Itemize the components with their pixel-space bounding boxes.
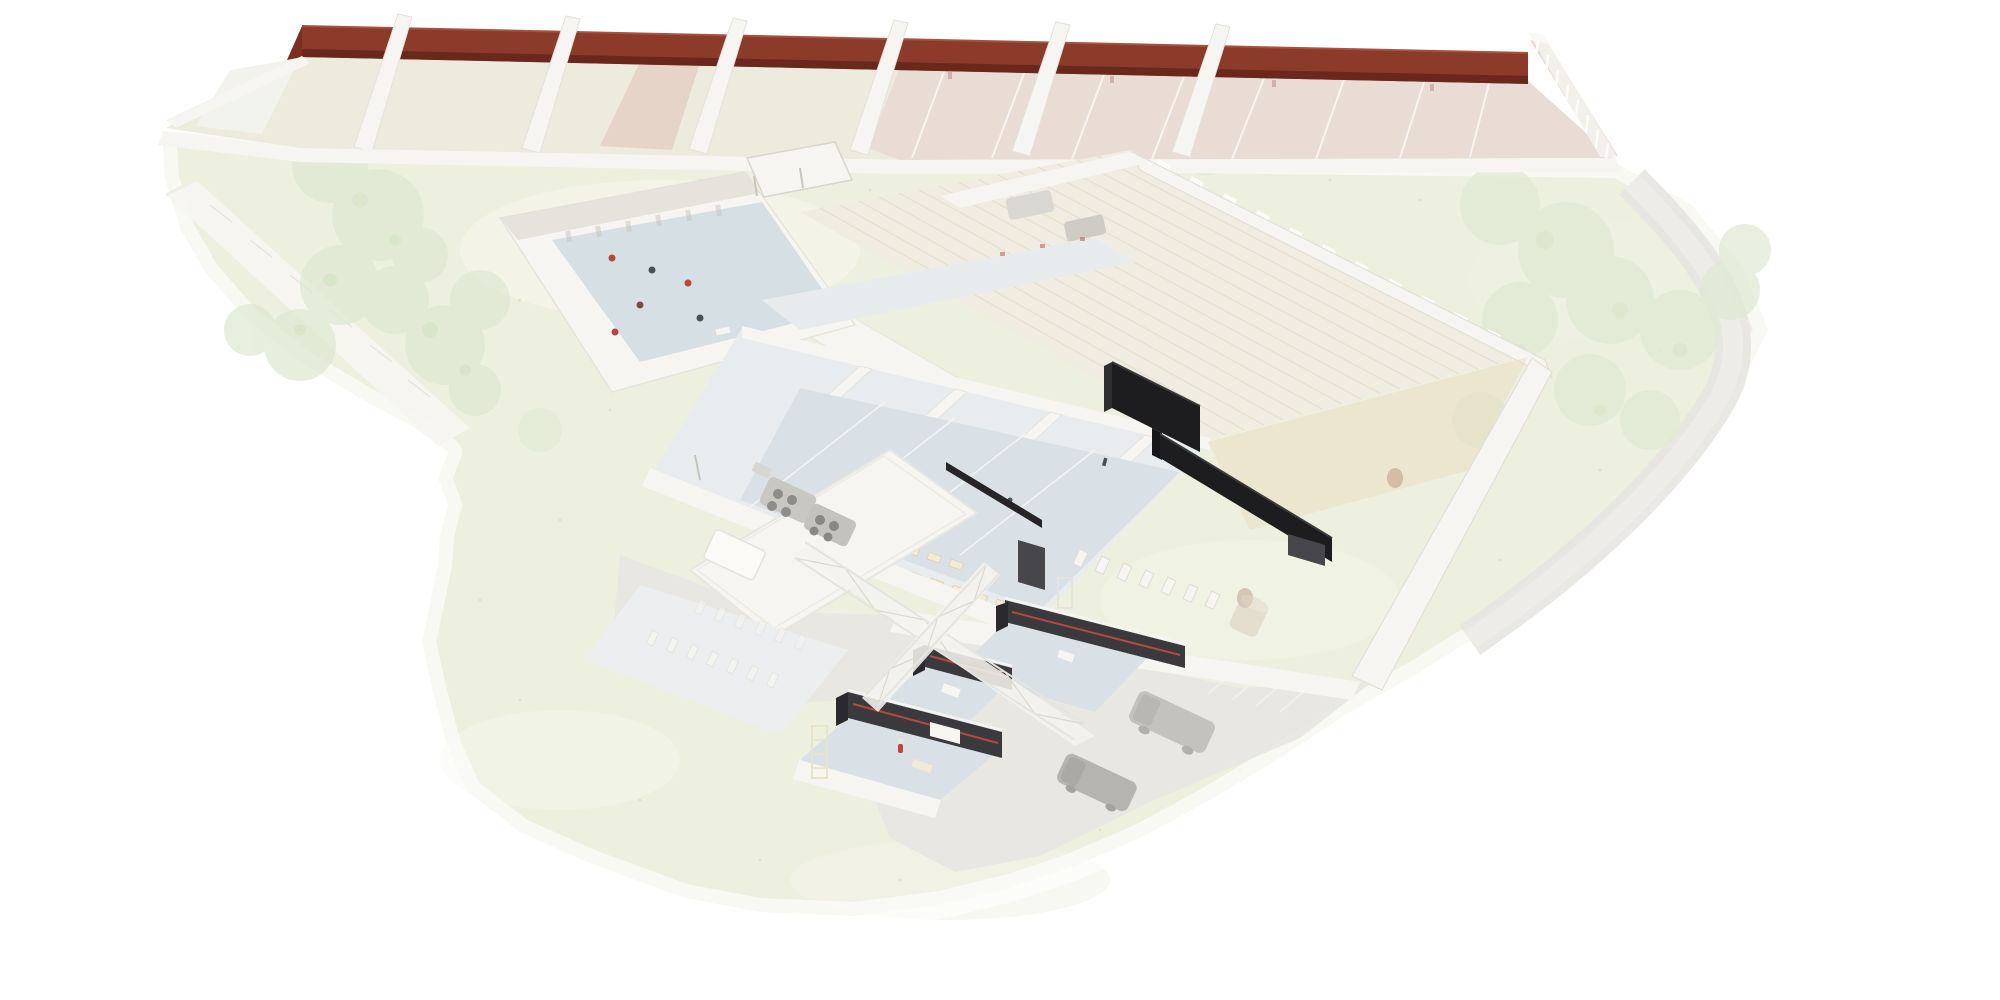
site-rendering (0, 0, 2000, 1000)
axonometric-scene (0, 0, 2000, 1000)
figure (612, 329, 619, 336)
figure (685, 280, 692, 287)
courts-strip (158, 14, 1620, 174)
red-wall-end-cap (287, 26, 302, 60)
figure (649, 267, 656, 274)
dark-wall-fragment-a (1018, 540, 1045, 590)
figure (637, 302, 644, 309)
figure (697, 315, 704, 322)
figure (609, 255, 616, 262)
black-wall-side (1104, 362, 1112, 412)
